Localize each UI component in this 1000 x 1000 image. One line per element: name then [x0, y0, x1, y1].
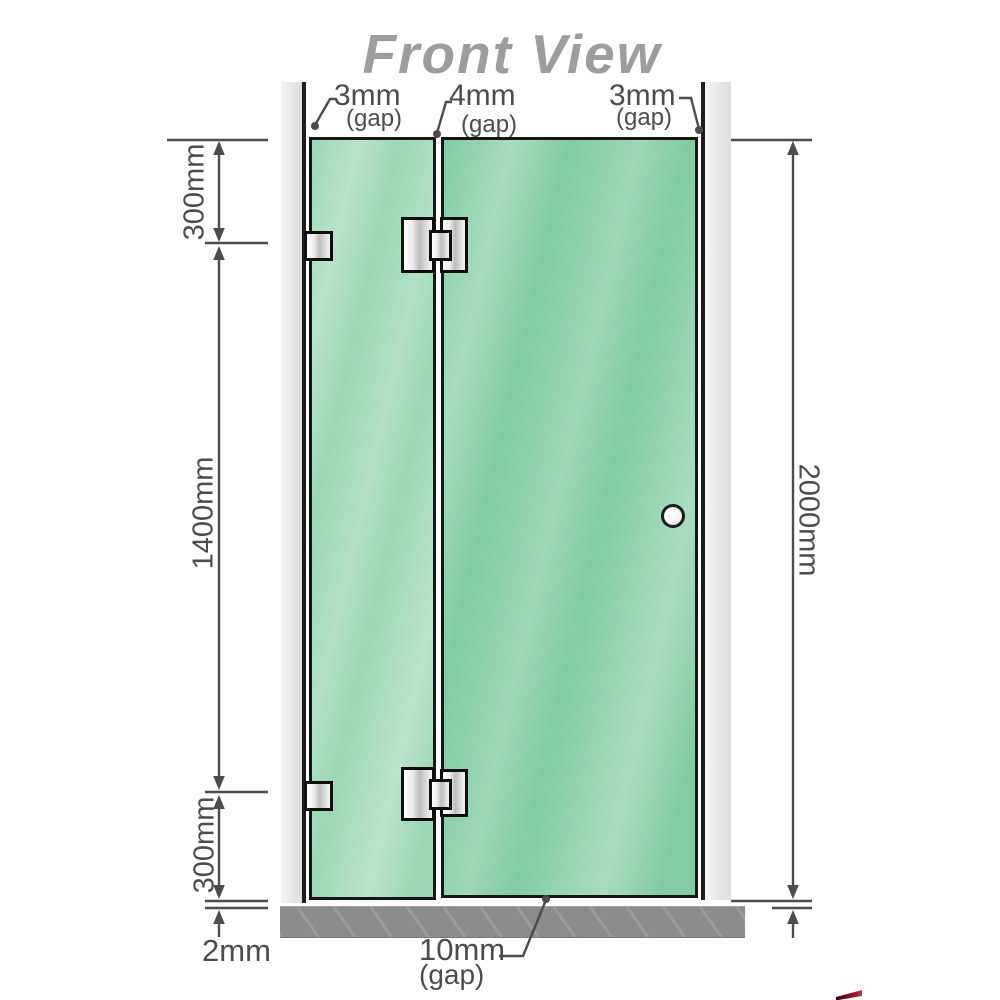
label-gap-top-middle-suffix: (gap) [461, 113, 517, 137]
label-gap-top-right-suffix: (gap) [616, 106, 672, 130]
label-gap-top-middle-value: 4mm [449, 81, 516, 111]
front-view-diagram: Front View [0, 0, 1000, 1000]
label-floor-clearance: 2mm [202, 935, 271, 966]
wall-channel-left [281, 82, 306, 903]
label-gap-bottom-suffix: (gap) [419, 961, 484, 989]
label-height-top-segment: 300mm [181, 144, 210, 241]
page-title: Front View [362, 22, 661, 86]
label-height-bottom-segment: 300mm [191, 797, 220, 894]
wall-channel-right [701, 82, 731, 900]
wall-bracket-bottom [304, 781, 333, 811]
hinge-bottom-knuckle [429, 779, 452, 810]
label-gap-top-left-suffix: (gap) [346, 107, 402, 131]
label-height-middle-segment: 1400mm [190, 457, 219, 570]
door-knob [661, 504, 685, 528]
label-total-height: 2000mm [794, 464, 823, 577]
logo-fragment [836, 990, 862, 1000]
wall-bracket-top [304, 231, 333, 261]
hinge-top-knuckle [429, 230, 452, 261]
floor-base [280, 906, 745, 938]
door-glass-panel [441, 137, 698, 898]
